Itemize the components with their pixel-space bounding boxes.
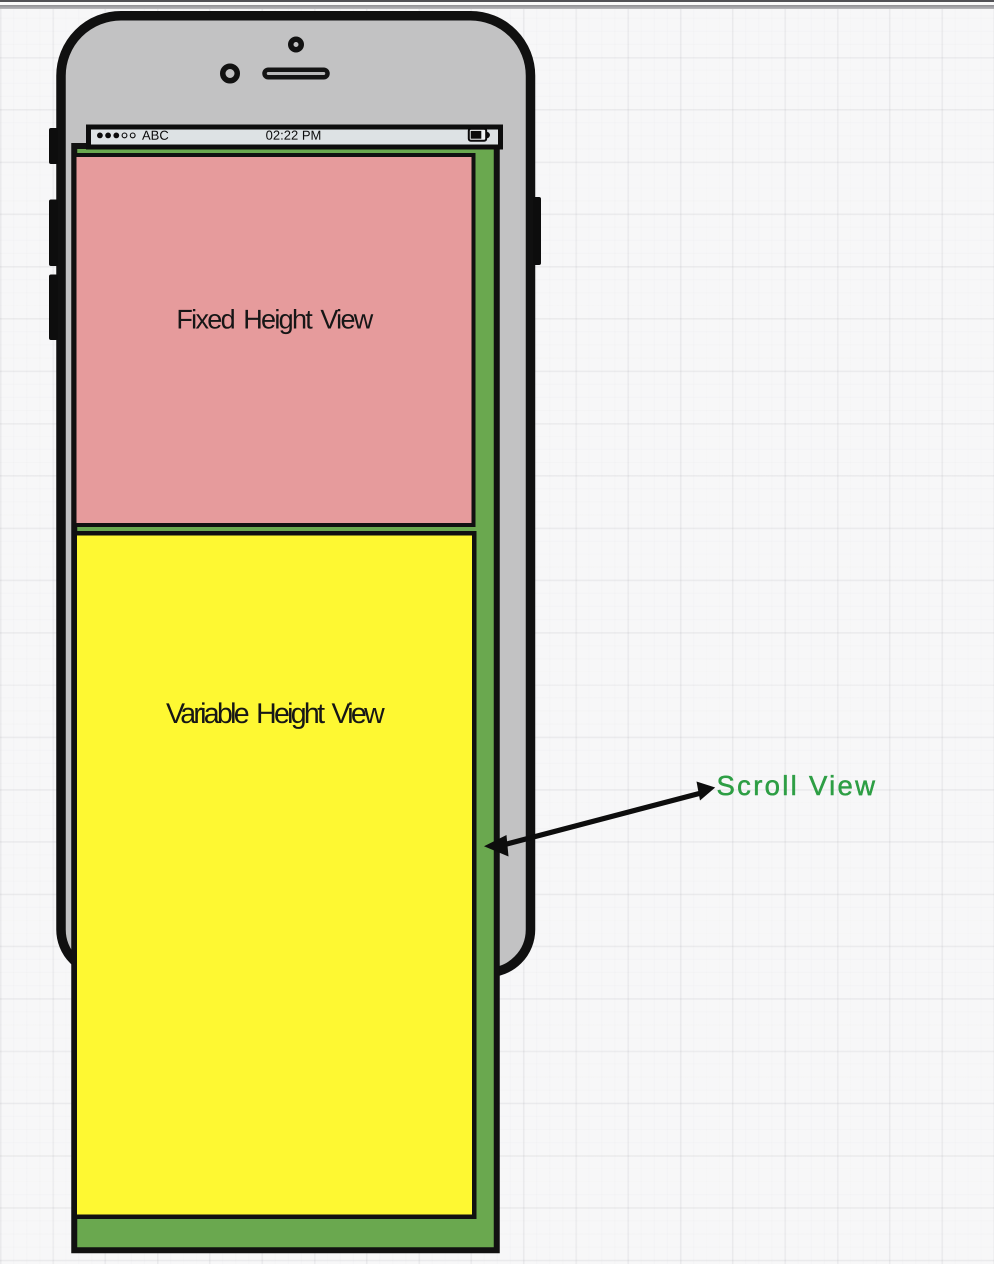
svg-text:Variable Height View: Variable Height View [166,698,385,730]
svg-text:02:22 PM: 02:22 PM [266,128,322,143]
svg-text:ABC: ABC [142,128,169,143]
svg-text:Scroll View: Scroll View [716,770,877,801]
svg-text:Fixed Height View: Fixed Height View [176,304,373,334]
